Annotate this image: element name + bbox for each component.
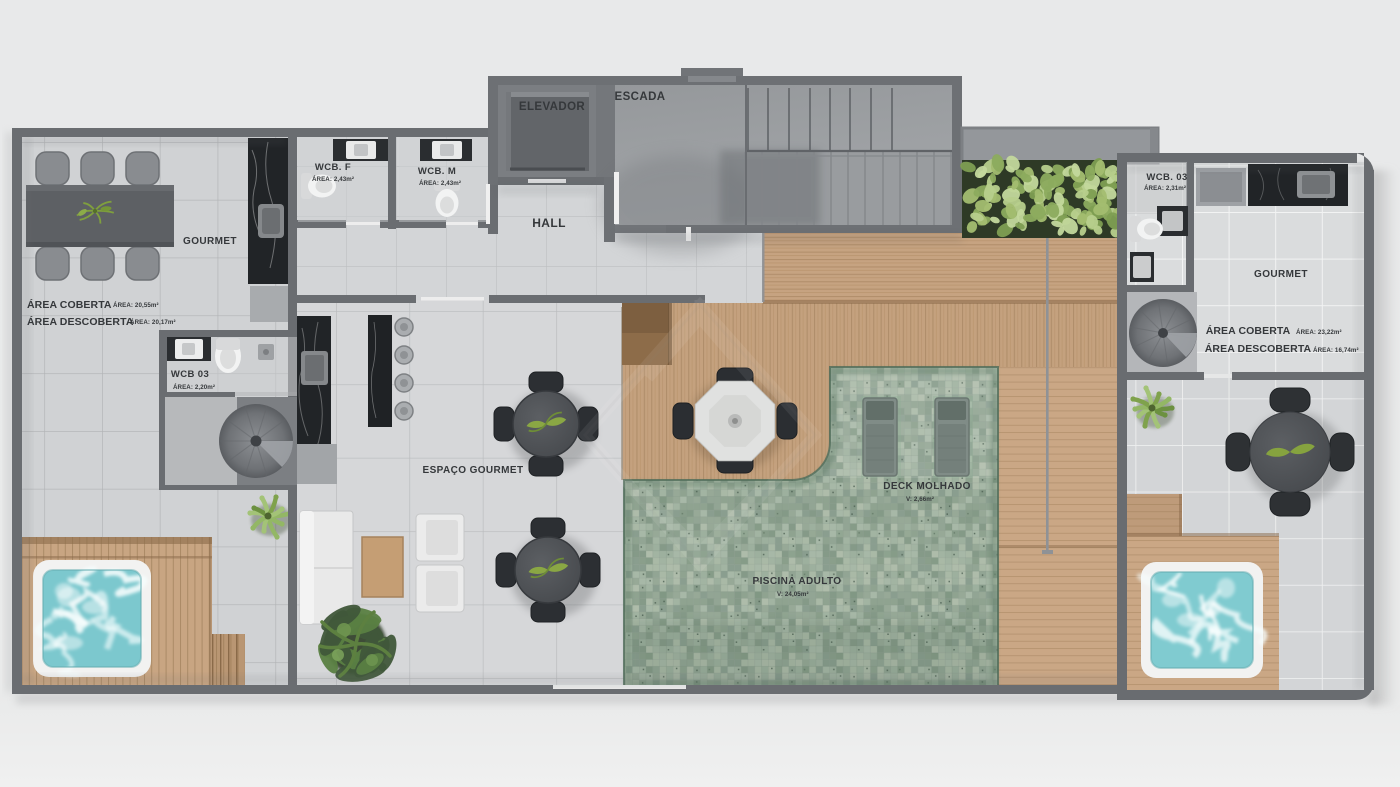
svg-text:V: 2,66m²: V: 2,66m²	[906, 496, 934, 503]
svg-text:GOURMET: GOURMET	[1254, 269, 1308, 280]
svg-text:ÁREA: 2,43m²: ÁREA: 2,43m²	[419, 180, 461, 187]
svg-text:ESCADA: ESCADA	[615, 91, 666, 103]
svg-text:ESPAÇO GOURMET: ESPAÇO GOURMET	[423, 465, 524, 476]
svg-text:WCB 03: WCB 03	[171, 369, 209, 380]
svg-text:ÁREA: 2,31m²: ÁREA: 2,31m²	[1144, 185, 1186, 192]
svg-text:ÁREA COBERTA: ÁREA COBERTA	[1206, 324, 1291, 337]
svg-text:ÁREA: 2,43m²: ÁREA: 2,43m²	[312, 176, 354, 183]
svg-text:DECK MOLHADO: DECK MOLHADO	[883, 481, 971, 492]
svg-text:WCB. F: WCB. F	[315, 162, 351, 173]
svg-text:V: 24,05m²: V: 24,05m²	[777, 591, 809, 598]
svg-text:ÁREA DESCOBERTA: ÁREA DESCOBERTA	[27, 315, 134, 328]
svg-text:ELEVADOR: ELEVADOR	[519, 101, 586, 113]
svg-text:ÁREA DESCOBERTA: ÁREA DESCOBERTA	[1205, 342, 1312, 355]
svg-text:WCB. M: WCB. M	[418, 166, 456, 177]
svg-text:ÁREA: 16,74m²: ÁREA: 16,74m²	[1313, 347, 1359, 354]
svg-text:ÁREA: 20,55m²: ÁREA: 20,55m²	[113, 302, 159, 309]
svg-text:ÁREA: 2,20m²: ÁREA: 2,20m²	[173, 384, 215, 391]
svg-text:ÁREA: 20,17m²: ÁREA: 20,17m²	[130, 319, 176, 326]
svg-text:ÁREA COBERTA: ÁREA COBERTA	[27, 298, 112, 311]
svg-text:WCB. 03: WCB. 03	[1146, 172, 1187, 183]
svg-text:HALL: HALL	[532, 216, 566, 230]
svg-text:ÁREA: 23,22m²: ÁREA: 23,22m²	[1296, 329, 1342, 336]
svg-text:PISCINA ADULTO: PISCINA ADULTO	[753, 576, 842, 587]
svg-text:GOURMET: GOURMET	[183, 236, 237, 247]
